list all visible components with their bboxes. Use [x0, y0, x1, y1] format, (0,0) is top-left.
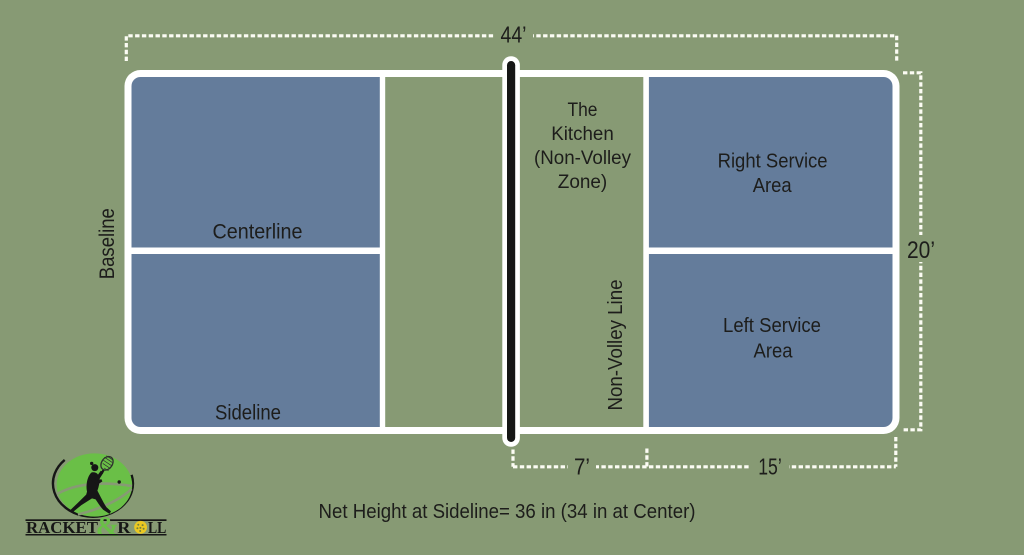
svg-text:Left Service: Left Service	[723, 315, 821, 337]
svg-text:Non-Volley Line: Non-Volley Line	[605, 280, 627, 411]
svg-text:Area: Area	[753, 175, 793, 197]
svg-text:Kitchen: Kitchen	[551, 124, 614, 145]
svg-text:Baseline: Baseline	[96, 208, 119, 279]
svg-text:44’: 44’	[501, 22, 527, 48]
svg-text:15’: 15’	[758, 454, 782, 480]
svg-text:20’: 20’	[907, 237, 935, 264]
svg-text:Zone): Zone)	[558, 172, 608, 193]
svg-text:Sideline: Sideline	[215, 402, 281, 425]
svg-text:Area: Area	[754, 340, 794, 362]
svg-text:Net Height at Sideline= 36 in: Net Height at Sideline= 36 in (34 in at …	[319, 501, 696, 523]
svg-text:Centerline: Centerline	[213, 221, 303, 244]
svg-text:The: The	[568, 100, 598, 121]
svg-text:7’: 7’	[574, 454, 590, 480]
svg-text:Right Service: Right Service	[718, 150, 828, 172]
svg-text:&: &	[96, 512, 119, 543]
svg-text:(Non-Volley: (Non-Volley	[534, 148, 631, 169]
